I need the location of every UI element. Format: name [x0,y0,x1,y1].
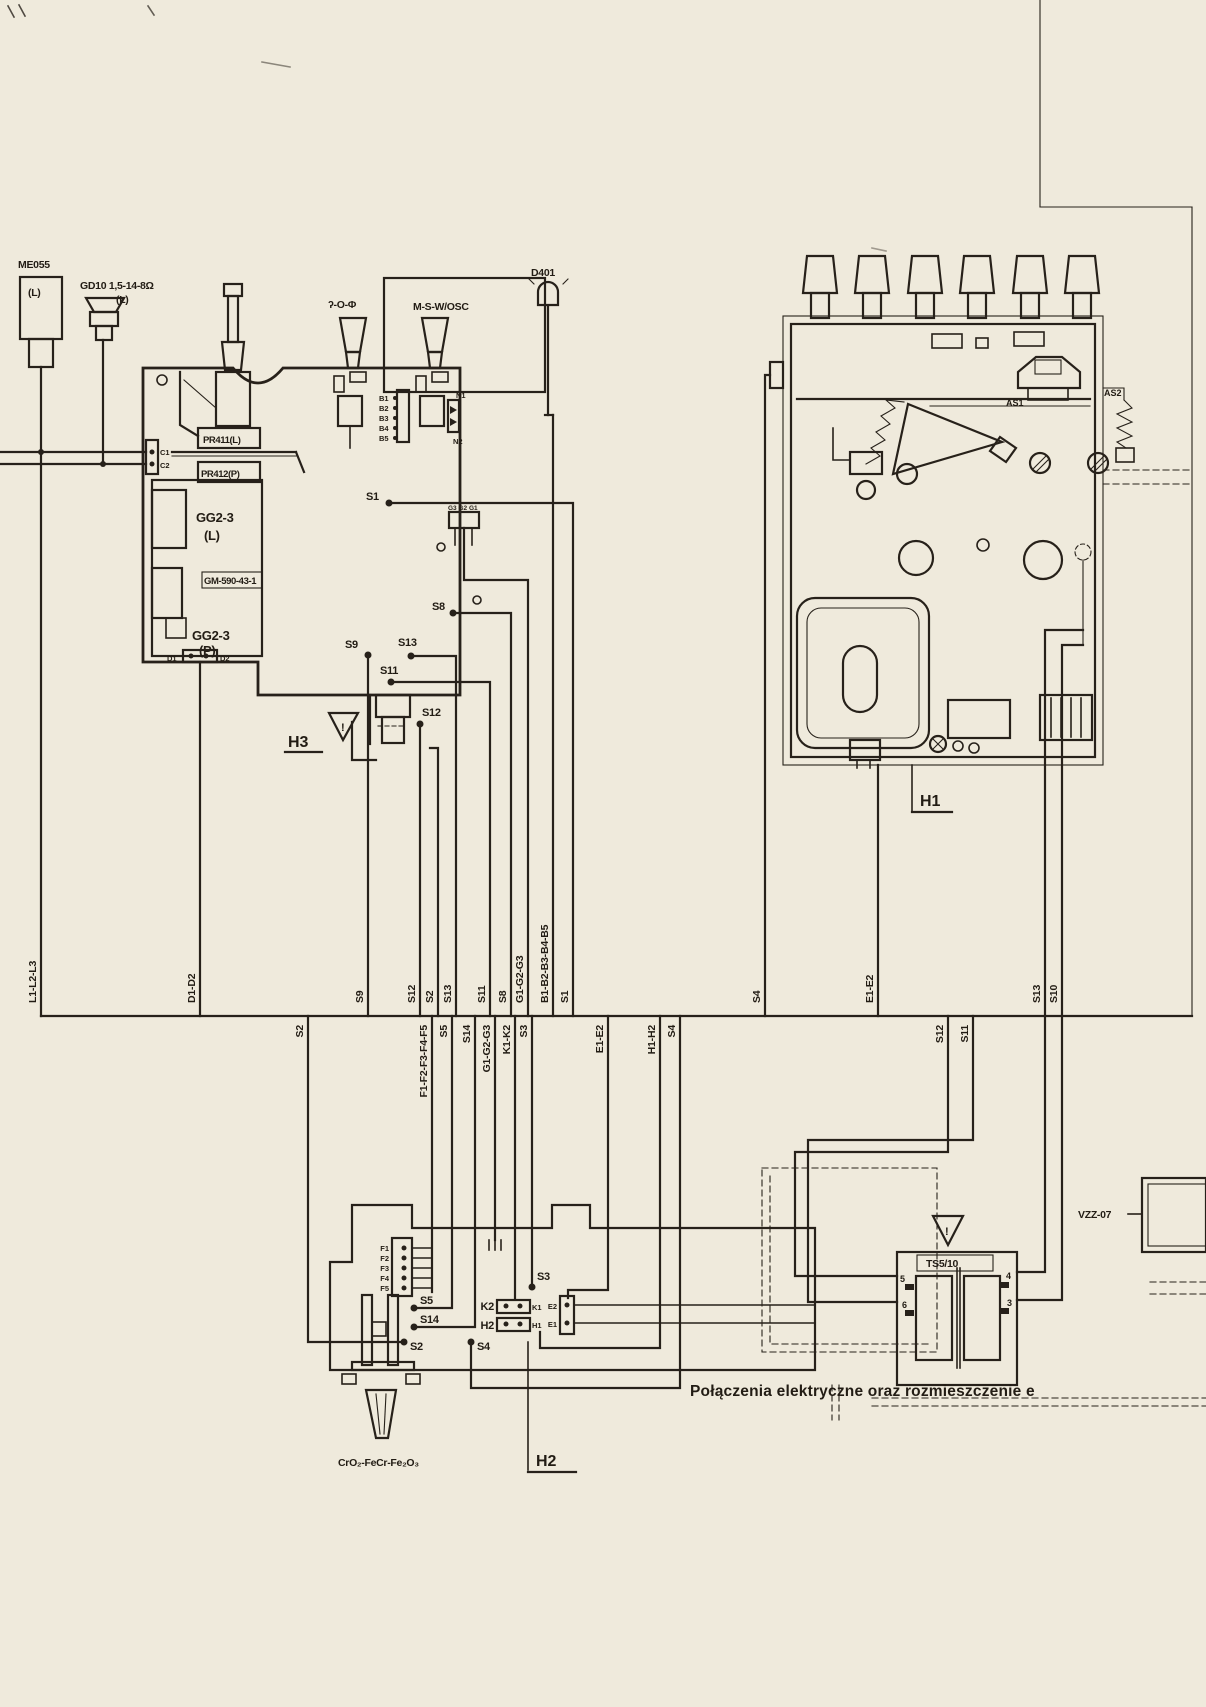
bus-top-14: S10 [1048,985,1060,1003]
screw-hole [473,596,481,604]
motor-block [948,700,1010,738]
socket-body [1142,1178,1206,1252]
diode-label: D401 [531,267,555,279]
s11-label: S11 [380,665,398,677]
f-pin-3: F3 [380,1264,389,1273]
bus-bot-5: K1-K2 [501,1025,513,1055]
screw-icon [930,736,946,752]
mic-model-label: ME055 [18,259,50,271]
as2-label: AS2 [1104,388,1122,398]
s12-label: S12 [422,707,441,719]
module-left-channel: (L) [204,528,220,543]
bus-top-0: L1-L2-L3 [27,960,39,1003]
e-connector: E2 E1 [548,1296,815,1334]
potentiometer-assembly: PR411(L) PR412(P) [172,284,304,482]
transformer-pin4: 4 [1006,1271,1011,1281]
bus-bot-11: S11 [959,1025,971,1043]
f-pin-1: F1 [380,1244,389,1253]
s12-bracket [352,695,410,760]
b-pin-3: B3 [379,414,389,423]
page-caption: Połączenia elektryczne oraz rozmieszczen… [690,1383,1035,1400]
as1-label: AS1 [1006,398,1024,408]
gg-module-board: GG2-3 (L) GM-590-43-1 GG2-3 (P) [152,480,262,658]
socket-label: VZZ-07 [1078,1209,1112,1221]
bus-top-1: D1-D2 [186,973,198,1003]
head-osc-label: M-S-W/OSC [413,301,469,313]
bus-bot-9: S4 [666,1025,678,1038]
pin-c2-label: C2 [160,461,170,470]
key-2[interactable] [855,256,889,318]
exit-wires-right [1103,470,1190,484]
bus-top-2: S9 [354,990,366,1003]
h-connector: H2 H1 [481,1318,542,1332]
svg-text:H3: H3 [288,734,309,751]
b-pin-4: B4 [379,424,389,433]
b-pin-1: B1 [379,394,389,403]
pin-h2-label: H2 [481,1320,495,1332]
wire-s4-top [765,375,770,1016]
pushbutton-keys[interactable] [803,256,1099,318]
bus-bottom-labels: S2 F1-F2-F3-F4-F5 S5 S14 G1-G2-G3 K1-K2 … [294,1025,971,1098]
s13-label: S13 [398,637,417,649]
pin-d1-label: D1 [167,654,177,663]
svg-text:H2: H2 [536,1453,557,1470]
warning-triangle-icon: ! [329,713,358,740]
wire-s10-right [1017,645,1083,1300]
bus-top-3: S12 [406,985,418,1003]
schematic-page: ME055 (L) GD10 1,5-14-8Ω (L) C1 C2 [0,0,1206,1707]
key-5[interactable] [1013,256,1047,318]
bus-bot-2: S5 [438,1025,450,1038]
transformer-pin6: 6 [902,1300,907,1310]
erase-head [342,1295,420,1438]
head-rp-label: ʔ-O-Φ [328,299,357,311]
b-pin-5: B5 [379,434,389,443]
transformer-name: TS5/10 [926,1258,959,1270]
svg-text:H1: H1 [920,793,941,810]
bus-bot-4: G1-G2-G3 [481,1025,493,1073]
f-pin-5: F5 [380,1284,389,1293]
warning-triangle-icon: ! [933,1216,963,1245]
warning-mark-2: ! [945,1226,948,1238]
adjust-screw-icon [1030,453,1050,473]
pot-right-label: PR412(P) [201,469,240,480]
connector-block [1040,695,1092,740]
bus-top-6: S11 [476,985,488,1003]
key-6[interactable] [1065,256,1099,318]
s3-label: S3 [537,1271,550,1283]
speaker-model-label: GD10 1,5-14-8Ω [80,280,154,292]
pin-c1-label: C1 [160,448,170,457]
module-right-label: GG2-3 [192,628,230,643]
bus-bot-3: S14 [461,1025,473,1043]
s1-label: S1 [366,491,379,503]
pin-d2-label: D2 [220,654,230,663]
pin-n1-label: N1 [456,391,466,400]
bus-top-12: E1-E2 [864,974,876,1003]
bus-bot-6: S3 [518,1025,530,1038]
pot-left-label: PR411(L) [203,435,241,446]
mic-channel-label: (L) [28,287,41,299]
k-connector: K2 K1 [481,1300,542,1313]
bus-bot-1: F1-F2-F3-F4-F5 [418,1025,430,1098]
s8-label: S8 [432,601,445,613]
f-pin-strip: F1 F2 F3 F4 F5 [380,1238,432,1296]
pin-k2-label: K2 [481,1301,495,1313]
bus-top-5: S13 [442,985,454,1003]
bus-bot-0: S2 [294,1025,306,1038]
flywheel [899,541,933,575]
warning-mark: ! [341,722,344,734]
pin-e2-label: E2 [548,1302,557,1311]
bus-top-10: S1 [559,990,571,1003]
h1-label: H1 [912,765,952,812]
bus-bot-7: E1-E2 [594,1025,606,1054]
s9-label: S9 [345,639,358,651]
h3-label: H3 [285,734,322,752]
b-pin-strip: B1 B2 B3 B4 B5 [379,390,409,443]
bus-bottom-wires [308,1016,973,1388]
screw-hole [437,543,445,551]
transformer-pin3: 3 [1007,1298,1012,1308]
mechanism-internals [797,332,1108,1300]
bus-top-9: B1-B2-B3-B4-B5 [539,924,551,1003]
h2-board-group: F1 F2 F3 F4 F5 S5 S14 S2 S4 S3 K2 K1 [330,1205,815,1472]
b-pin-2: B2 [379,404,389,413]
h3-board-group: ME055 (L) GD10 1,5-14-8Ω (L) C1 C2 [0,259,573,1016]
pin-h1-label: H1 [532,1321,542,1330]
bus-top-13: S13 [1031,985,1043,1003]
n-pin-strip: N1 N2 [448,391,466,446]
cassette-well [797,598,929,748]
bus-top-labels: L1-L2-L3 D1-D2 S9 S12 S2 S13 S11 S8 G1-G… [27,924,1060,1003]
pin-k1-label: K1 [532,1303,542,1312]
wire-s11 [391,682,490,1016]
pin-n2-label: N2 [453,437,463,446]
bus-top-4: S2 [424,990,436,1003]
tape-formula-label: CrO₂-FeCr-Fe₂O₃ [338,1457,419,1469]
scan-marks [8,5,886,251]
bus-top-7: S8 [497,990,509,1003]
socket-group: VZZ-07 [1078,1178,1206,1252]
screw-hole [157,375,167,385]
h2-label: H2 [528,1342,576,1472]
s5-label: S5 [420,1295,433,1307]
f-pin-4: F4 [380,1274,390,1283]
bus-top-8: G1-G2-G3 [514,955,526,1003]
h1-mechanism-group: AS1 AS2 H1 [765,256,1190,1300]
record-play-head: ʔ-O-Φ [328,299,366,448]
pin-e1-label: E1 [548,1320,557,1329]
d-connector: D1 D2 [167,650,230,1016]
as2-spring [1103,388,1134,462]
wire-s13-right [1017,630,1083,1272]
s4-label: S4 [477,1341,491,1353]
module-code-label: GM-590-43-1 [204,576,257,587]
transformer-pin5: 5 [900,1274,905,1284]
h1-outer-case [783,316,1103,765]
bus-bot-8: H1-H2 [646,1025,658,1055]
bus-bot-10: S12 [934,1025,946,1043]
bus-top-11: S4 [751,990,763,1003]
flywheel [1024,541,1062,579]
key-1[interactable] [803,256,837,318]
s2-label: S2 [410,1341,423,1353]
f-pin-2: F2 [380,1254,389,1263]
key-4[interactable] [960,256,994,318]
microphone-symbol: ME055 (L) [18,259,62,1016]
wire-s2-top [430,748,438,1016]
speaker-symbol: GD10 1,5-14-8Ω (L) [38,280,154,467]
wire-s8 [453,613,511,1016]
module-left-label: GG2-3 [196,510,234,525]
key-3[interactable] [908,256,942,318]
s14-label: S14 [420,1314,440,1326]
wiring-bus: L1-L2-L3 D1-D2 S9 S12 S2 S13 S11 S8 G1-G… [27,0,1192,1388]
